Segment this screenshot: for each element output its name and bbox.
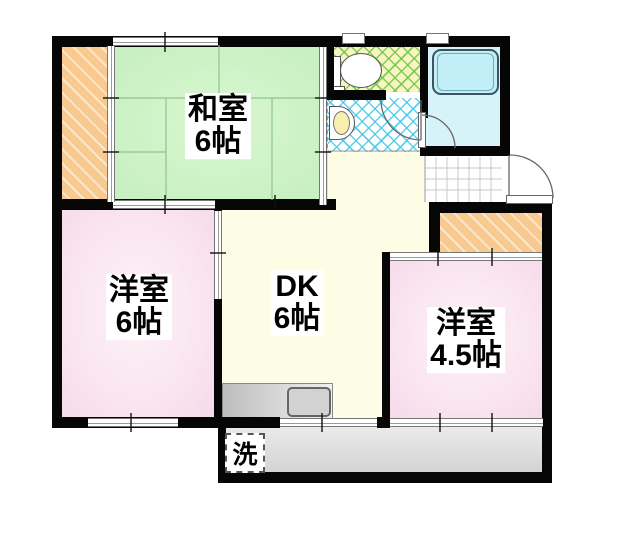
label-western6: 洋室 6帖	[106, 274, 172, 340]
open-boundaries	[327, 102, 420, 151]
label-western45-size: 4.5帖	[430, 340, 502, 372]
label-washitsu: 和室 6帖	[185, 93, 251, 159]
genkan-tile-grid	[425, 156, 502, 202]
label-dk-size: 6帖	[274, 303, 321, 335]
label-western45-name: 洋室	[430, 308, 502, 340]
label-dk-name: DK	[274, 271, 321, 303]
floor-plan: 洗	[0, 0, 640, 536]
label-washitsu-size: 6帖	[188, 126, 248, 158]
label-western6-size: 6帖	[109, 307, 169, 339]
label-dk: DK 6帖	[271, 270, 324, 336]
label-washitsu-name: 和室	[188, 94, 248, 126]
label-western6-name: 洋室	[109, 275, 169, 307]
door-arcs	[381, 100, 553, 198]
label-western45: 洋室 4.5帖	[427, 307, 505, 373]
plan-annotations	[0, 0, 640, 536]
